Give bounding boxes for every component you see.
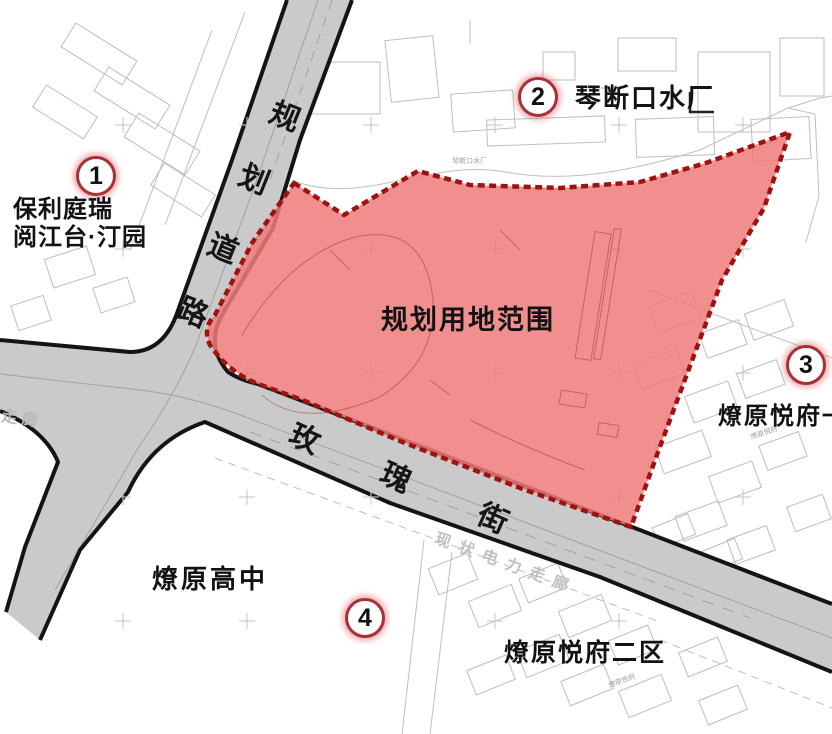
marker-3: 3 [786, 345, 826, 385]
marker-1: 1 [76, 156, 116, 196]
label-poli-line2: 阅江台·汀园 [13, 224, 147, 252]
label-poli-residence: 保利庭瑞 阅江台·汀园 [13, 196, 147, 251]
label-high-school: 燎原高中 [152, 565, 268, 595]
water-plant-small-text: 琴断口水厂 [452, 156, 487, 166]
planning-map: 现状电力走廊 走廊 琴断口水厂 燎原悦府 燎原悦府 规 划 道 路 玫 瑰 街 … [0, 0, 832, 734]
marker-2: 2 [518, 77, 558, 117]
label-water-plant: 琴断口水厂 [575, 84, 715, 114]
label-poli-line1: 保利庭瑞 [13, 196, 147, 224]
planning-area-label: 规划用地范围 [381, 305, 555, 336]
marker-4: 4 [345, 598, 385, 638]
label-yuefu-district2: 燎原悦府二区 [504, 639, 666, 668]
label-yuefu-east: 燎原悦府一区 [718, 403, 832, 431]
